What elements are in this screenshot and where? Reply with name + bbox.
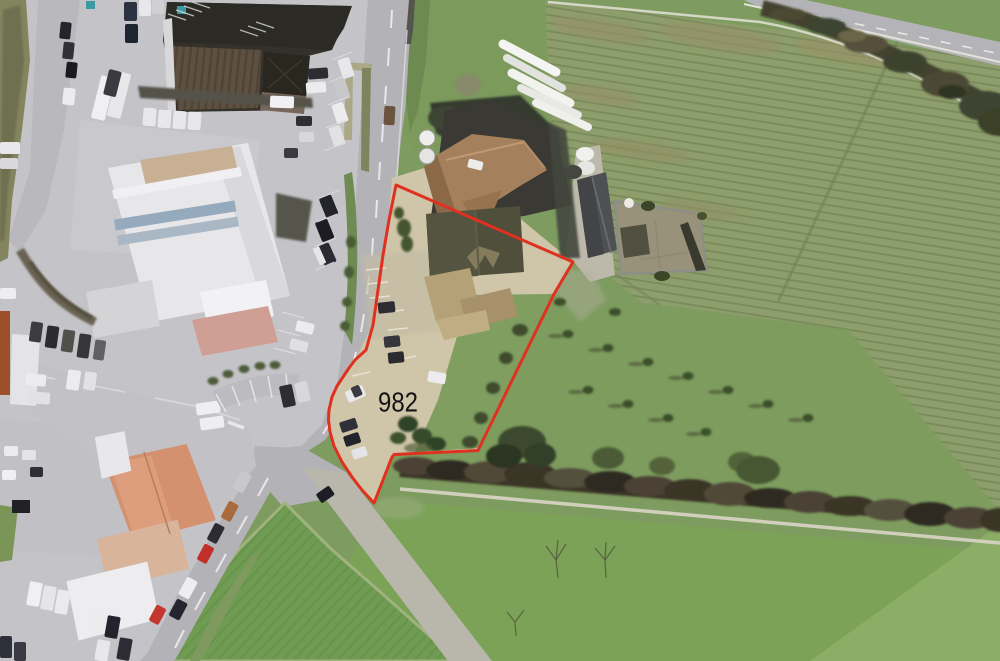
svg-text:982: 982 (378, 387, 418, 418)
